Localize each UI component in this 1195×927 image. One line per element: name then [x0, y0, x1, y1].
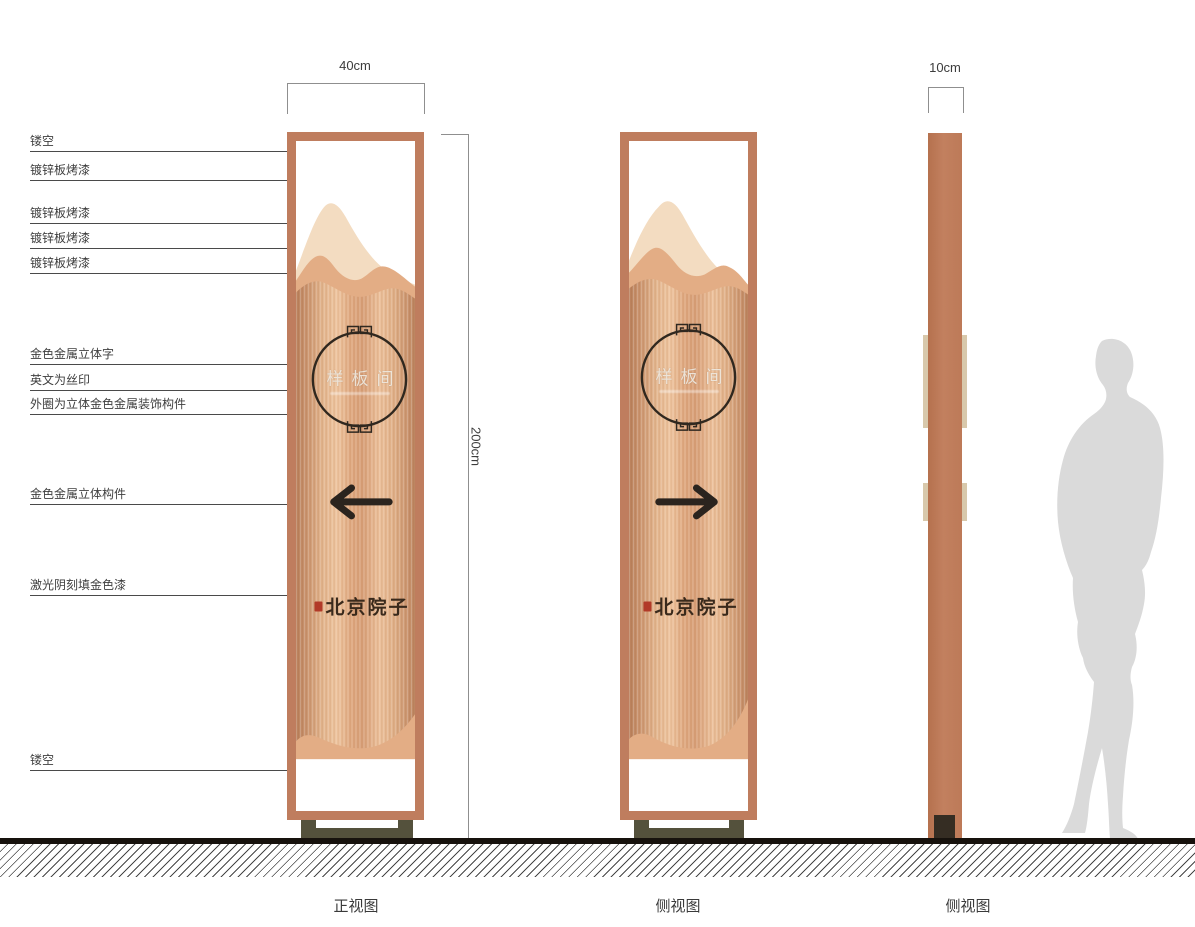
callout-leader-line [30, 223, 323, 224]
callout-hollow-top: 镂空 [30, 134, 307, 152]
view-label-back: 侧视图 [655, 895, 700, 916]
ground-hatch [0, 844, 1195, 877]
front-panel-art [296, 141, 415, 811]
dim-width-label: 40cm [287, 58, 423, 73]
side-profile-base-foot [934, 815, 955, 838]
callout-label: 镀锌板烤漆 [30, 163, 287, 177]
brand-calligraphy: 北京院子 [314, 593, 409, 620]
callout-leader-line [30, 414, 320, 415]
callout-label: 激光阴刻填金色漆 [30, 578, 300, 592]
english-silkscreen-text [330, 392, 390, 395]
callout-galvanized-3: 镀锌板烤漆 [30, 231, 289, 249]
side-profile-arrow-protrusion-left [923, 483, 928, 521]
back-panel: 样板间 北京院子 [620, 132, 757, 820]
signage-design-sheet: 镂空 镀锌板烤漆 镀锌板烤漆 镀锌板烤漆 镀锌板烤漆 金色金属立体字 英文为丝印… [0, 0, 1195, 927]
callout-galvanized-1: 镀锌板烤漆 [30, 163, 287, 181]
panel-body-brush-texture [629, 279, 748, 748]
side-profile-ring-protrusion-left [923, 335, 928, 428]
brand-text: 北京院子 [325, 598, 409, 619]
callout-label: 镀锌板烤漆 [30, 256, 289, 270]
dim-depth-bracket [928, 87, 964, 113]
seal-stamp-icon [643, 602, 651, 612]
callout-hollow-bottom: 镂空 [30, 753, 305, 771]
callout-gold-ring-component: 外圈为立体金色金属装饰构件 [30, 397, 320, 415]
callout-leader-line [30, 595, 300, 596]
callout-galvanized-2: 镀锌板烤漆 [30, 206, 323, 224]
view-label-side: 侧视图 [945, 895, 990, 916]
front-panel-base [301, 820, 413, 838]
callout-leader-line [30, 180, 287, 181]
front-panel: 样板间 北京院子 [287, 132, 424, 820]
brand-calligraphy: 北京院子 [643, 593, 738, 620]
side-profile-ring-protrusion-right [962, 335, 967, 428]
callout-leader-line [30, 770, 305, 771]
callout-laser-engraved-gold: 激光阴刻填金色漆 [30, 578, 300, 596]
callout-leader-line [30, 273, 289, 274]
back-panel-base [634, 820, 744, 838]
callout-leader-line [30, 248, 289, 249]
callout-leader-line [30, 151, 307, 152]
dim-width-bracket [287, 83, 425, 114]
callout-label: 镀锌板烤漆 [30, 231, 289, 245]
dim-depth-label: 10cm [910, 60, 980, 75]
side-profile-arrow-protrusion-right [962, 483, 967, 521]
side-profile-bar [928, 133, 962, 838]
back-panel-art [629, 141, 748, 811]
callout-galvanized-4: 镀锌板烤漆 [30, 256, 289, 274]
callout-label: 镀锌板烤漆 [30, 206, 323, 220]
callout-label: 镂空 [30, 134, 307, 148]
dim-height-label: 200cm [469, 422, 484, 472]
circle-text: 样板间 [319, 365, 402, 390]
person-silhouette [1038, 336, 1178, 843]
english-silkscreen-text [659, 390, 719, 393]
dim-height-tick [441, 134, 468, 135]
seal-stamp-icon [314, 602, 322, 612]
dim-height-line [468, 134, 469, 838]
view-label-front: 正视图 [333, 895, 378, 916]
brand-text: 北京院子 [654, 598, 738, 619]
circle-text: 样板间 [648, 363, 731, 388]
callout-label: 外圈为立体金色金属装饰构件 [30, 397, 320, 411]
callout-label: 镂空 [30, 753, 305, 767]
